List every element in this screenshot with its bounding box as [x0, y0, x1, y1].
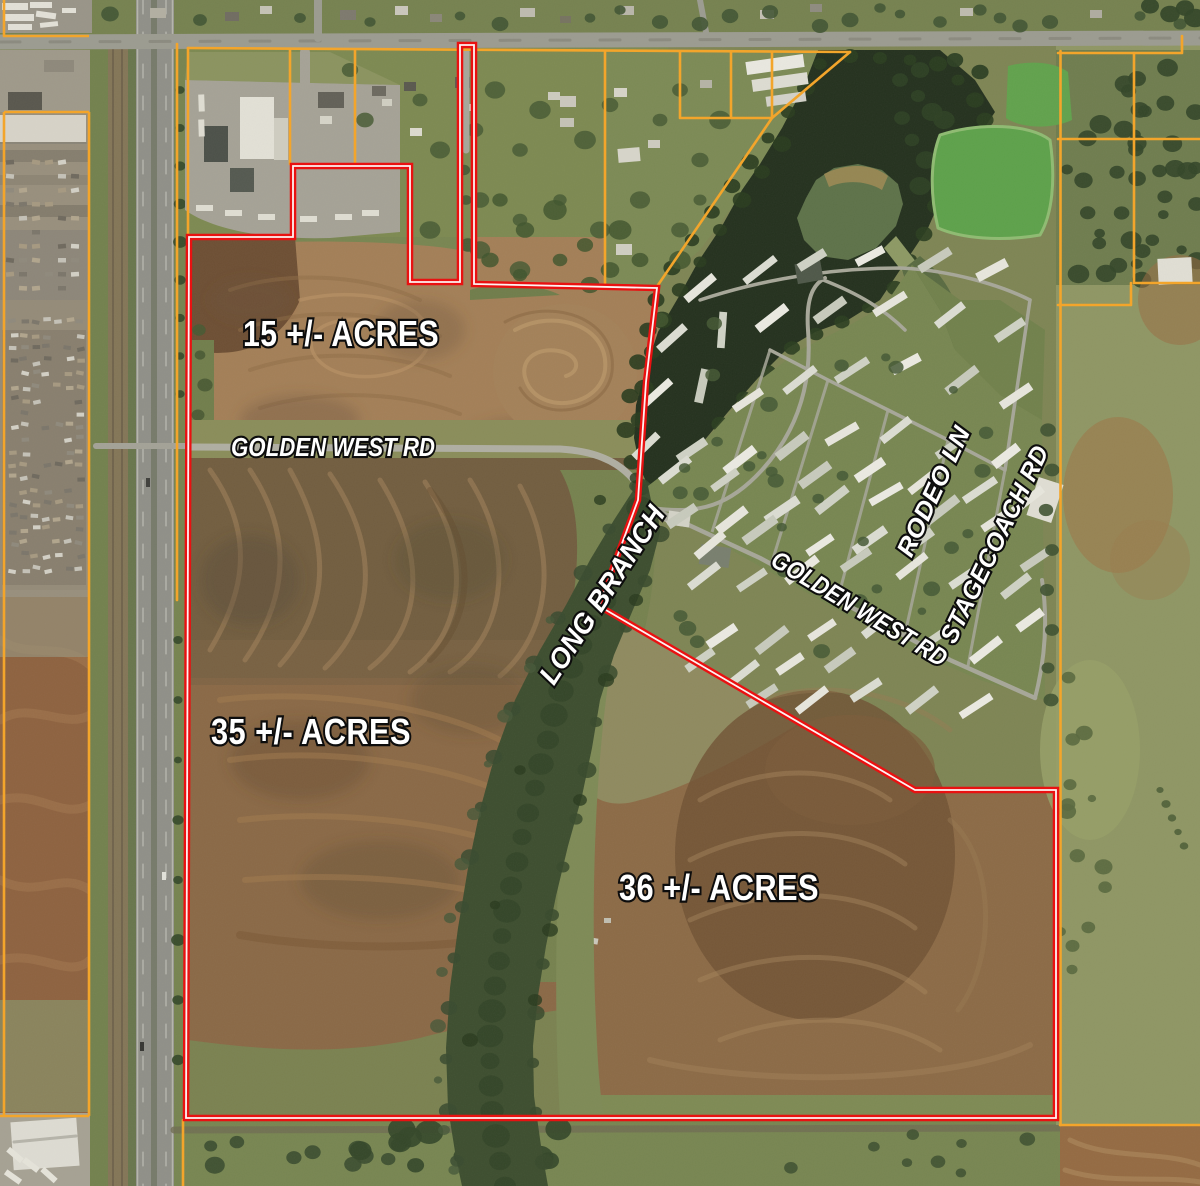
svg-text:GOLDEN WEST RD: GOLDEN WEST RD — [231, 432, 435, 462]
svg-text:36 +/- ACRES: 36 +/- ACRES — [619, 867, 819, 908]
svg-text:35 +/- ACRES: 35 +/- ACRES — [211, 711, 411, 752]
svg-text:15 +/- ACRES: 15 +/- ACRES — [243, 313, 439, 354]
